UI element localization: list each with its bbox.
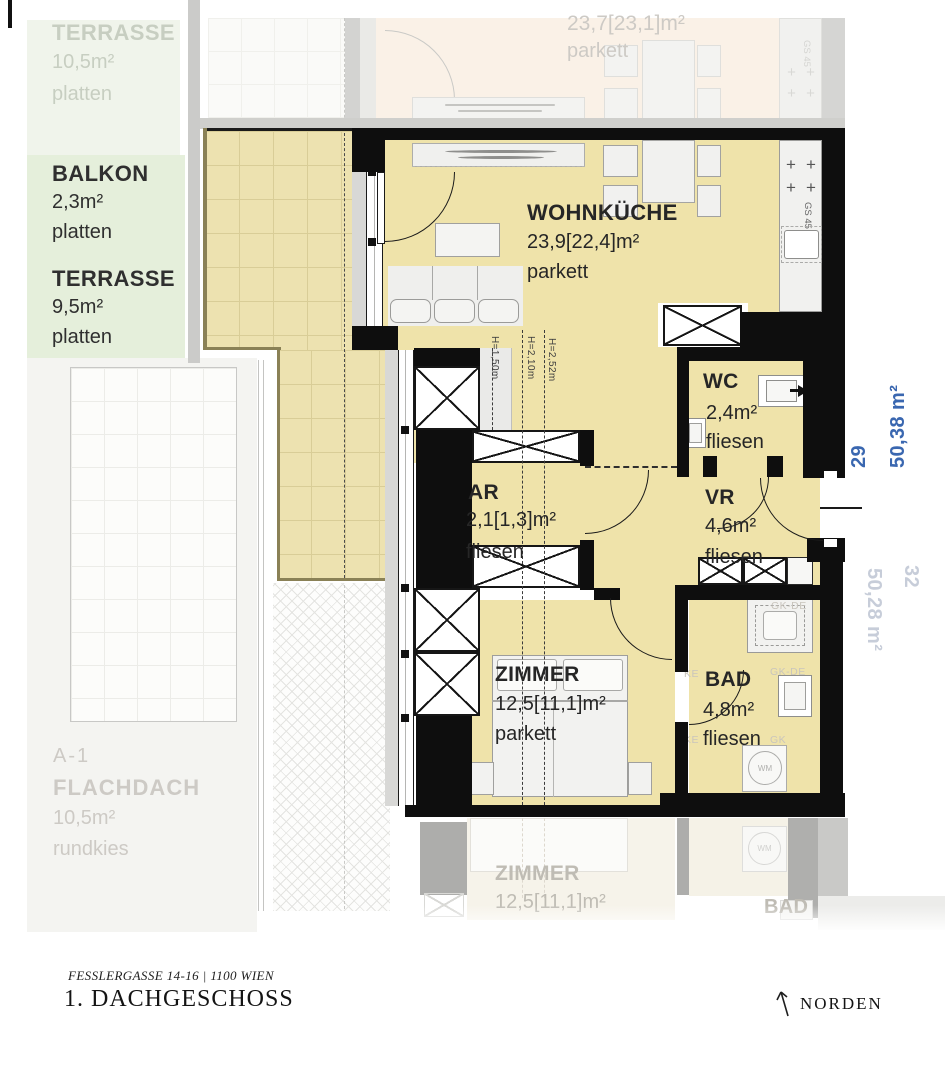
neighbor-area-label: 50,28 m² — [862, 568, 885, 660]
wall-segment — [822, 140, 845, 318]
faded-wall — [822, 18, 845, 128]
washbasin-icon — [784, 682, 806, 710]
wall-segment — [352, 326, 398, 350]
window-hinge — [401, 426, 409, 434]
page-title: 1. DACHGESCHOSS — [64, 986, 294, 1013]
dishwasher-label: GS 45 — [802, 202, 813, 229]
dashed-guide — [412, 166, 585, 167]
flachdach-name: FLACHDACH — [53, 775, 200, 801]
flachdach-tiles — [70, 367, 237, 722]
wall-segment — [677, 347, 689, 477]
room-area-wc: 2,4m² — [706, 402, 757, 425]
dining-table — [642, 140, 695, 203]
terrasse-upper-floor: platten — [52, 83, 112, 106]
shaft-icon — [414, 588, 480, 652]
window-glazing-line — [405, 350, 406, 806]
room-area-zimmer: 12,5[11,1]m² — [495, 693, 606, 716]
terrasse-upper-area: 10,5m² — [52, 51, 114, 74]
height-annotation: H=2,52m — [546, 338, 557, 382]
room-area-ar: 2,1[1,3]m² — [466, 509, 556, 532]
entry-door-leaf — [820, 507, 862, 509]
window-sill — [385, 350, 398, 806]
chair — [697, 185, 721, 217]
gk-ceiling-label: GK — [770, 734, 786, 746]
room-label-zimmer: ZIMMER — [495, 663, 580, 687]
shaft-icon — [663, 305, 742, 346]
faded-wall — [345, 18, 360, 128]
terrace-border — [277, 347, 280, 581]
wc-sink-icon — [689, 423, 702, 443]
kitchen-sink-icon — [784, 230, 819, 259]
room-label-bad: BAD — [705, 668, 751, 692]
faded-sideboard-detail — [445, 104, 555, 106]
height-annotation: H=1,50m — [489, 336, 500, 380]
wall-segment — [352, 128, 845, 140]
height-annotation: H=2,10m — [525, 336, 536, 380]
roof-hatch — [273, 583, 390, 911]
room-label-wohnkueche: WOHNKÜCHE — [527, 200, 678, 226]
wall-segment — [414, 348, 480, 366]
flachdach-area: 10,5m² — [53, 807, 115, 830]
room-floor-bad: fliesen — [703, 728, 761, 751]
apartment-number-label: 29 — [848, 442, 871, 468]
faded-chair — [697, 45, 721, 77]
reflection-zimmer-label: ZIMMER — [495, 862, 580, 886]
faded-window-band — [360, 18, 376, 128]
page-edge-mark — [8, 0, 12, 28]
flachdach-code: A-1 — [53, 745, 90, 768]
terrasse-name: TERRASSE — [52, 266, 175, 292]
room-label-vr: VR — [705, 486, 735, 510]
room-floor-zimmer: parkett — [495, 723, 556, 746]
sideboard-detail — [445, 150, 557, 153]
entry-hinge — [824, 471, 837, 479]
door-post — [580, 540, 594, 590]
shaft-icon — [414, 652, 480, 716]
window-hinge — [368, 238, 376, 246]
window-hinge — [401, 584, 409, 592]
faded-cooktop: ++++ — [782, 62, 820, 104]
reflection-wm-label: WM — [757, 844, 771, 853]
window-hinge — [401, 650, 409, 658]
terrace-dashed-line — [344, 133, 345, 578]
balkon-name: BALKON — [52, 161, 149, 187]
room-area-vr: 4,6m² — [705, 515, 756, 538]
upper-terrace-tiles — [208, 18, 345, 128]
nightstand — [628, 762, 652, 795]
terrace-floor — [277, 350, 386, 581]
sofa — [388, 266, 523, 326]
wall-segment — [416, 716, 472, 806]
nightstand — [470, 762, 494, 795]
terrace-border — [203, 128, 207, 350]
faded-chair — [604, 88, 638, 120]
faded-chair — [697, 88, 721, 120]
wall-segment — [416, 430, 472, 588]
terrasse-area: 9,5m² — [52, 296, 103, 319]
shaft-icon — [414, 366, 480, 430]
room-floor-wohnkueche: parkett — [527, 261, 588, 284]
wall-segment — [405, 805, 680, 817]
room-label-wc: WC — [703, 370, 739, 394]
wall-segment — [660, 793, 845, 817]
wm-label: WM — [758, 764, 772, 773]
wall-segment — [675, 585, 688, 672]
washing-machine-drum: WM — [748, 751, 782, 785]
north-label: NORDEN — [800, 994, 883, 1014]
apartment-area-label: 50,38 m² — [887, 373, 910, 468]
door-post — [703, 456, 717, 477]
wardrobe-icon — [472, 430, 580, 463]
chair — [697, 145, 721, 177]
faded-wall — [188, 0, 200, 363]
window-glazing-line — [374, 170, 375, 328]
coffee-table — [435, 223, 500, 257]
roof-dashed-line — [344, 585, 345, 909]
reflection-zimmer-area: 12,5[11,1]m² — [495, 891, 606, 914]
chair — [603, 145, 638, 177]
ar-floor — [470, 463, 594, 547]
roof-edge-line — [258, 360, 259, 911]
room-area-bad: 4,8m² — [703, 699, 754, 722]
terrace-border — [203, 347, 281, 350]
faded-dining-table — [642, 40, 695, 120]
neighbor-above-area: 23,7[23,1]m² — [567, 12, 685, 36]
room-floor-vr: fliesen — [705, 546, 763, 569]
neighbor-number-label: 32 — [899, 565, 922, 591]
window-hinge — [401, 714, 409, 722]
floorplan-canvas: TERRASSE 10,5m² platten BALKON 2,3m² pla… — [0, 0, 945, 1080]
balkon-floor: platten — [52, 221, 112, 244]
terrace-door-leaf — [377, 172, 385, 244]
footer-address: FESSLERGASSE 14-16 | 1100 WIEN — [68, 968, 274, 984]
door-post — [580, 430, 594, 466]
terrace-border — [277, 578, 386, 581]
room-floor-wc: fliesen — [706, 431, 764, 454]
terrasse-upper-name: TERRASSE — [52, 20, 175, 46]
balkon-area: 2,3m² — [52, 191, 103, 214]
wall-segment — [803, 312, 845, 478]
room-floor-ar: fliesen — [466, 541, 524, 564]
room-area-wohnkueche: 23,9[22,4]m² — [527, 231, 639, 254]
reflection-bad-label: BAD — [764, 896, 808, 919]
shower-tray — [763, 611, 797, 640]
terrasse-floor: platten — [52, 326, 112, 349]
wall-segment — [352, 128, 385, 172]
door-post — [767, 456, 783, 477]
flachdach-floor: rundkies — [53, 838, 129, 861]
sideboard — [412, 143, 585, 167]
north-arrow-icon — [774, 988, 796, 1018]
neighbor-above-floor: parkett — [567, 40, 628, 63]
cooktop-icon: ++++ — [781, 153, 821, 199]
room-label-ar: AR — [468, 481, 499, 505]
gk-ceiling-label: GK-DE — [770, 666, 806, 678]
window-sill — [352, 168, 366, 330]
roof-edge-line — [263, 360, 264, 911]
boundary-dashed-line — [585, 466, 677, 468]
sideboard-detail — [458, 156, 544, 159]
wall-segment — [675, 585, 820, 600]
corridor-floor — [594, 326, 663, 347]
entry-hinge — [824, 539, 837, 547]
wall-segment — [820, 562, 843, 817]
gk-ceiling-label: GK-DE — [771, 600, 807, 612]
faded-sideboard-detail — [458, 110, 542, 112]
wall-segment — [677, 347, 822, 361]
window-band — [398, 350, 414, 806]
